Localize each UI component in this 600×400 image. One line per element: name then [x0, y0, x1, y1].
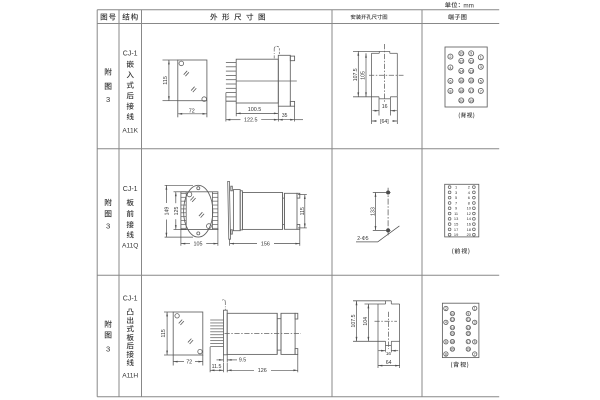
svg-text:2-Φ5: 2-Φ5 [357, 236, 368, 242]
svg-text:13: 13 [466, 326, 470, 330]
svg-text:A11K: A11K [122, 127, 138, 134]
svg-text:72: 72 [186, 359, 192, 365]
svg-text:3: 3 [455, 190, 457, 195]
svg-text:3: 3 [106, 95, 110, 104]
svg-text:16: 16 [386, 351, 392, 356]
svg-text:4: 4 [468, 190, 471, 195]
svg-text:CJ-1: CJ-1 [123, 51, 138, 58]
svg-text:9: 9 [455, 206, 457, 211]
svg-text:18: 18 [451, 340, 455, 344]
svg-text:15: 15 [454, 221, 458, 226]
svg-text:6: 6 [468, 195, 470, 200]
svg-text:16: 16 [382, 104, 388, 110]
svg-text:20: 20 [467, 232, 472, 237]
svg-text:4: 4 [445, 321, 447, 325]
svg-text:10: 10 [467, 206, 472, 211]
svg-text:2: 2 [468, 184, 470, 189]
svg-text:14: 14 [459, 69, 463, 73]
svg-text:3: 3 [106, 344, 110, 353]
svg-text:115: 115 [163, 76, 169, 85]
svg-text:15: 15 [466, 332, 470, 336]
svg-text:126: 126 [258, 368, 267, 374]
svg-text:A11Q: A11Q [122, 243, 138, 250]
svg-text:17: 17 [454, 227, 458, 232]
svg-text:3: 3 [480, 65, 482, 69]
svg-text:9: 9 [467, 312, 469, 316]
svg-text:1: 1 [480, 56, 482, 60]
svg-text:149: 149 [164, 207, 170, 216]
svg-text:12: 12 [451, 318, 455, 322]
svg-text:5: 5 [480, 79, 482, 83]
svg-text:105: 105 [194, 241, 203, 247]
svg-text:14: 14 [467, 216, 472, 221]
svg-text:17: 17 [469, 89, 473, 93]
svg-text:17: 17 [466, 340, 470, 344]
svg-text:12: 12 [467, 211, 471, 216]
svg-text:11: 11 [469, 59, 473, 63]
svg-text:11: 11 [467, 318, 471, 322]
svg-text:16: 16 [467, 221, 471, 226]
svg-text:6: 6 [445, 340, 447, 344]
svg-text:18: 18 [459, 89, 463, 93]
svg-text:107.5: 107.5 [351, 314, 357, 327]
svg-text:7: 7 [474, 352, 476, 356]
svg-text:11: 11 [454, 211, 458, 216]
svg-text:1: 1 [455, 184, 457, 189]
svg-text:5: 5 [455, 195, 457, 200]
svg-text:20: 20 [459, 99, 463, 103]
svg-text:8: 8 [445, 352, 447, 356]
svg-text:104: 104 [363, 317, 369, 326]
svg-text:10: 10 [459, 52, 463, 56]
svg-text:2: 2 [445, 307, 447, 311]
svg-text:9.5: 9.5 [239, 358, 246, 364]
svg-text:5: 5 [474, 340, 476, 344]
svg-text:14: 14 [451, 326, 455, 330]
svg-text:115: 115 [300, 207, 306, 215]
svg-text:18: 18 [467, 227, 471, 232]
svg-text:CJ-1: CJ-1 [123, 295, 138, 302]
svg-text:7: 7 [480, 89, 482, 93]
svg-text:100.5: 100.5 [248, 107, 262, 113]
svg-text:7: 7 [455, 200, 457, 205]
svg-text:11.5: 11.5 [212, 364, 222, 370]
svg-text:122.5: 122.5 [244, 117, 258, 123]
svg-text:12: 12 [459, 59, 463, 63]
svg-text:35: 35 [282, 113, 288, 119]
svg-text:13: 13 [454, 216, 458, 221]
svg-text:19: 19 [454, 232, 458, 237]
svg-text:8: 8 [468, 200, 470, 205]
svg-text:156: 156 [261, 241, 270, 247]
svg-text:3: 3 [474, 321, 476, 325]
svg-text:A11H: A11H [122, 372, 138, 379]
svg-text:9: 9 [470, 52, 472, 56]
svg-text:15: 15 [469, 79, 473, 83]
svg-text:64: 64 [386, 360, 392, 366]
svg-text:125: 125 [174, 207, 180, 216]
svg-text:16: 16 [459, 79, 463, 83]
svg-text:10: 10 [451, 312, 455, 316]
svg-text:107.5: 107.5 [353, 68, 359, 81]
svg-text:13: 13 [469, 69, 473, 73]
svg-text:CJ-1: CJ-1 [123, 186, 138, 193]
svg-text:19: 19 [466, 347, 470, 351]
svg-text:1: 1 [474, 307, 476, 311]
svg-text:2: 2 [449, 55, 451, 59]
svg-text:6: 6 [449, 79, 451, 83]
svg-text:72: 72 [189, 108, 195, 114]
svg-text:115: 115 [161, 329, 167, 337]
svg-text:3: 3 [106, 221, 110, 230]
svg-text:20: 20 [451, 347, 455, 351]
svg-text:mm: mm [463, 2, 474, 9]
svg-text:133: 133 [371, 207, 377, 216]
svg-text:16: 16 [451, 332, 455, 336]
svg-text:[64]: [64] [380, 119, 389, 125]
svg-text:19: 19 [469, 99, 473, 103]
svg-text:4: 4 [449, 66, 451, 70]
svg-text:105: 105 [361, 71, 367, 80]
svg-text:8: 8 [449, 89, 451, 93]
